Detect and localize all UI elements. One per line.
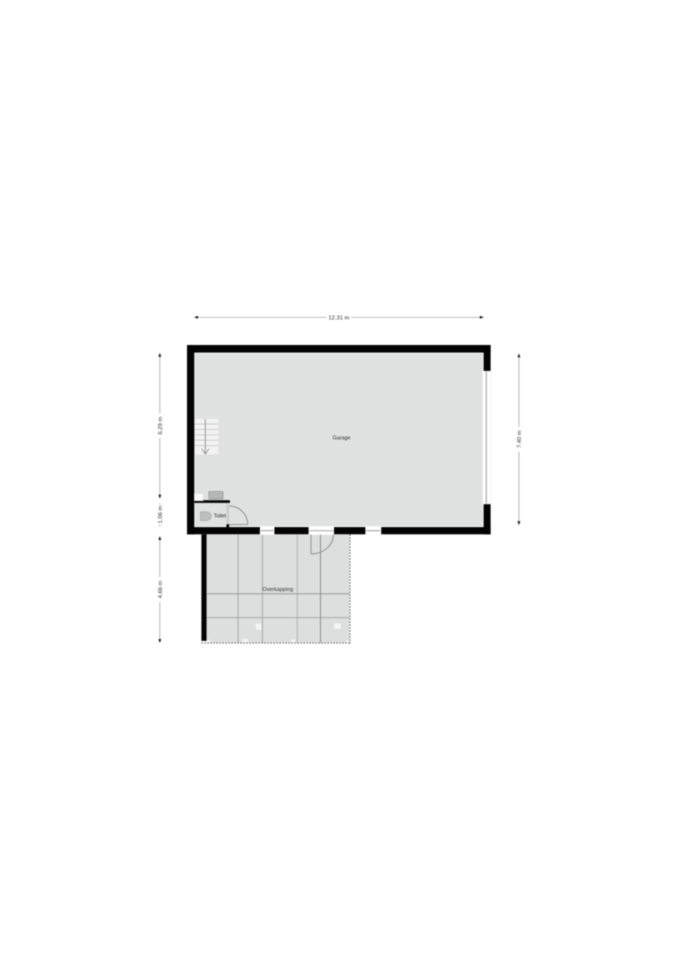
svg-text:Toilet: Toilet (214, 514, 227, 520)
svg-text:4.66 m: 4.66 m (158, 580, 164, 598)
svg-text:6.29 m: 6.29 m (158, 417, 164, 435)
svg-text:Overkapping: Overkapping (263, 587, 294, 593)
svg-text:Garage: Garage (333, 435, 351, 441)
svg-text:12.31 m: 12.31 m (328, 316, 349, 322)
svg-text:1.06 m: 1.06 m (158, 506, 164, 524)
svg-text:7.40 m: 7.40 m (517, 430, 523, 448)
